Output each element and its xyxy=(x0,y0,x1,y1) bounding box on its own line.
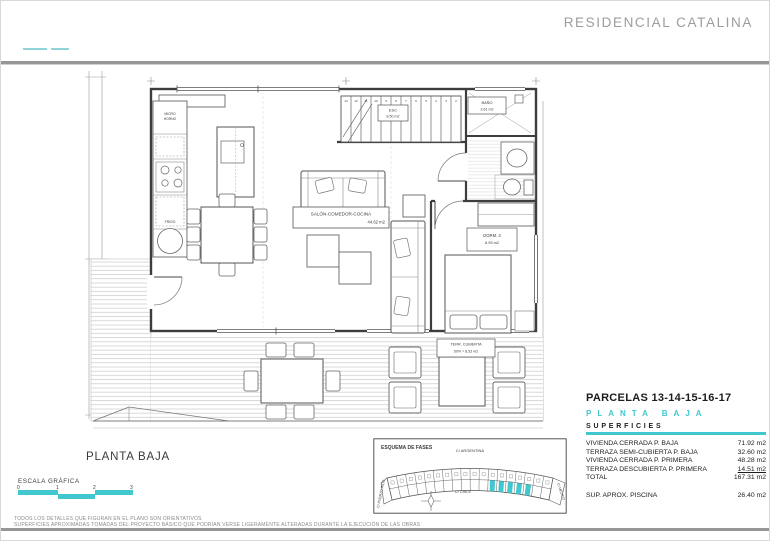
document-title: RESIDENCIAL CATALINA xyxy=(564,15,753,30)
bath-area: 3.61 m2 xyxy=(481,108,494,112)
dining-table xyxy=(201,207,253,263)
svg-text:3: 3 xyxy=(445,99,447,103)
accent-bar xyxy=(586,432,766,435)
plan-title: PLANTA BAJA xyxy=(86,451,170,463)
bedroom-area: 8.93 m2 xyxy=(485,240,499,245)
svg-text:8: 8 xyxy=(395,99,397,103)
micro-label-2: HORNO xyxy=(164,117,177,121)
table-row: TERRAZA DESCUBIERTA P. PRIMERA14.51 m2 xyxy=(586,466,766,475)
svg-text:12: 12 xyxy=(354,99,358,103)
terrace-area: 50% = 8.53 m2 xyxy=(454,350,478,354)
staircase: 13 12 11 10 9 8 7 6 5 4 3 2 ESC 8.50 m2 xyxy=(341,96,461,142)
logo-dash-2 xyxy=(51,48,69,50)
table-row-pool: SUP. APROX. PISCINA26.40 m2 xyxy=(586,492,766,501)
pillow xyxy=(480,315,507,329)
phase-scheme: ESQUEMA DE FASES C/ ARGENTINA C/ CHILE C… xyxy=(373,438,567,514)
svg-text:6: 6 xyxy=(415,99,417,103)
street-argentina: C/ ARGENTINA xyxy=(456,448,485,453)
street-chile: C/ CHILE xyxy=(455,490,472,494)
highlighted-parcel xyxy=(498,481,504,492)
surface-summary: PARCELAS 13-14-15-16-17 PLANTA BAJA SUPE… xyxy=(586,392,766,501)
highlighted-parcel xyxy=(490,480,495,491)
disclaimer: TODOS LOS DETALLES QUE FIGURAN EN EL PLA… xyxy=(14,516,420,528)
lounge-table xyxy=(439,357,485,406)
bath-label: BAÑO xyxy=(481,100,492,105)
graphic-scale: ESCALA GRÁFICA 0 1 2 3 xyxy=(15,475,155,503)
terrace-label: TERR. CUBIERTA xyxy=(450,343,482,347)
coffee-table xyxy=(339,252,371,284)
table-row: TERRAZA SEMI-CUBIERTA P. BAJA32.60 m2 xyxy=(586,449,766,458)
scale-bars xyxy=(18,490,133,499)
table-row-total: TOTAL167.31 m2 xyxy=(586,474,766,483)
svg-text:4: 4 xyxy=(435,99,437,103)
table-row: VIVIENDA CERRADA P. PRIMERA48.28 m2 xyxy=(586,457,766,466)
svg-text:13: 13 xyxy=(344,99,348,103)
side-table xyxy=(403,195,425,217)
living-label: SALÓN-COMEDOR-COCINA xyxy=(311,211,372,217)
toilet xyxy=(504,179,521,195)
highlighted-parcel xyxy=(507,482,513,494)
fridge-label: FRIGO xyxy=(165,220,176,224)
pillow xyxy=(450,315,477,329)
coffee-table xyxy=(307,235,339,267)
svg-text:7: 7 xyxy=(405,99,407,103)
svg-text:5: 5 xyxy=(425,99,427,103)
svg-text:9: 9 xyxy=(385,99,387,103)
terrace-lounge: TERR. CUBIERTA 50% = 8.53 m2 xyxy=(389,339,525,413)
sheet: RESIDENCIAL CATALINA xyxy=(0,0,770,541)
stairs-area: 8.50 m2 xyxy=(387,115,400,119)
floor-plan: 13 12 11 10 9 8 7 6 5 4 3 2 ESC 8.50 m2 … xyxy=(81,63,551,438)
living-area: 44.62 m2 xyxy=(368,220,386,225)
summary-subtitle: PLANTA BAJA xyxy=(586,409,766,418)
summary-section: SUPERFICIES xyxy=(586,423,766,430)
nightstand xyxy=(515,311,534,331)
micro-label-1: MICRO xyxy=(164,112,176,116)
surface-table: VIVIENDA CERRADA P. BAJA71.92 m2 TERRAZA… xyxy=(586,440,766,501)
svg-text:10: 10 xyxy=(374,99,378,103)
parcels-title: PARCELAS 13-14-15-16-17 xyxy=(586,392,766,404)
scale-label: ESCALA GRÁFICA xyxy=(18,478,80,485)
table-row: VIVIENDA CERRADA P. BAJA71.92 m2 xyxy=(586,440,766,449)
svg-text:2: 2 xyxy=(455,99,457,103)
logo-dash-1 xyxy=(23,48,47,50)
round-sink xyxy=(158,229,183,254)
stairs-label: ESC xyxy=(389,108,397,113)
svg-text:11: 11 xyxy=(364,99,367,103)
outdoor-table xyxy=(261,359,323,403)
fases-title: ESQUEMA DE FASES xyxy=(381,445,433,451)
bedroom-label: DORM. 3 xyxy=(483,233,501,238)
footer-rule xyxy=(1,528,770,531)
sink xyxy=(507,149,527,167)
